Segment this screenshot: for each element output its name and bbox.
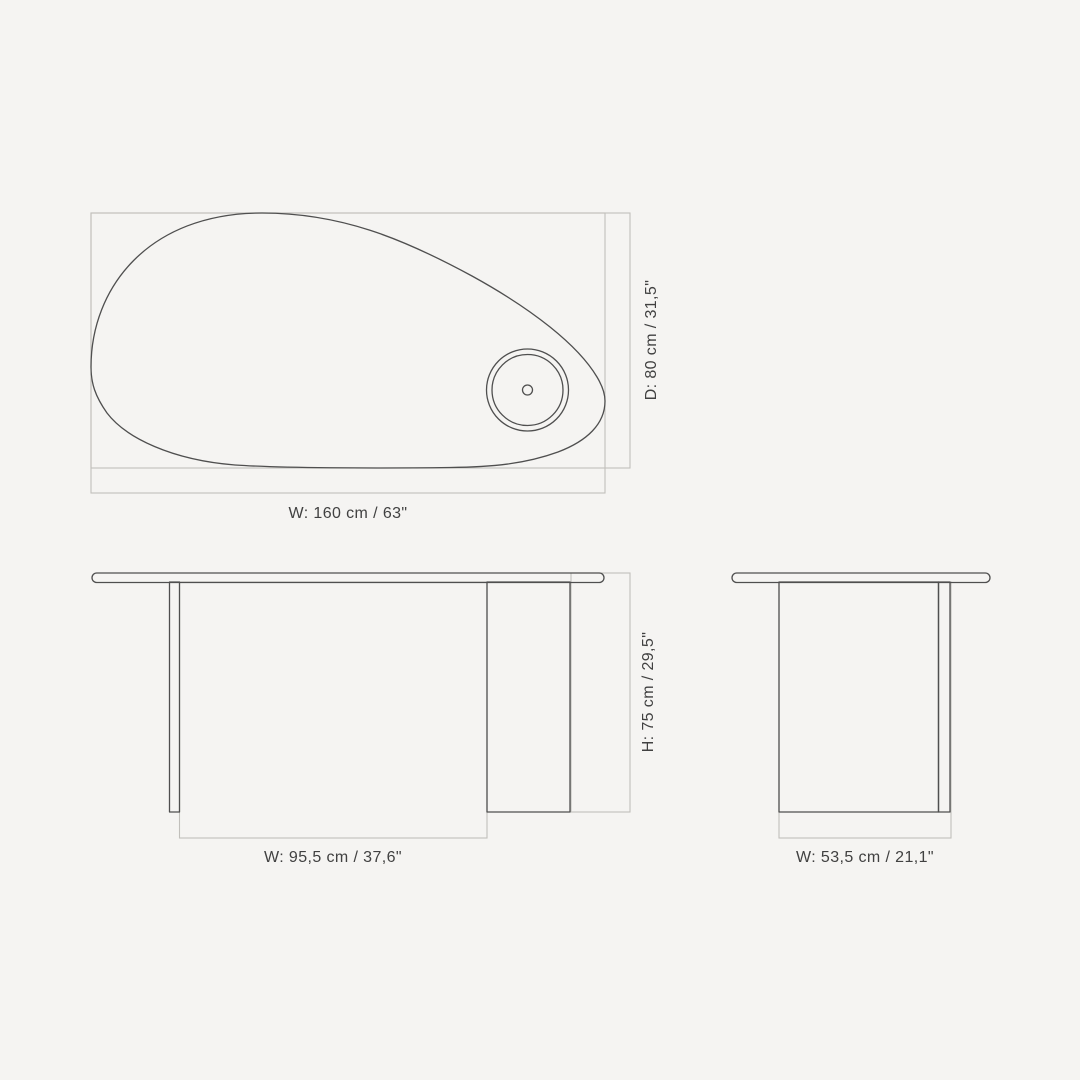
front-view-height-label: H: 75 cm / 29,5" (640, 632, 658, 753)
side-view-main-base-panel (779, 582, 939, 812)
dimension-drawing-linework (0, 0, 1080, 1080)
top-view-width-label: W: 160 cm / 63" (289, 505, 408, 523)
bowl-outer-circle (487, 349, 569, 431)
front-view-right-base-panel (487, 582, 570, 812)
furniture-dimension-drawing: W: 160 cm / 63" D: 80 cm / 31,5" W: 95,5… (0, 0, 1080, 1080)
side-view-width-dimension-box (779, 582, 951, 838)
front-view-base-width-dimension-box (180, 582, 488, 838)
front-view (92, 573, 630, 838)
side-view-tabletop-slab (732, 573, 990, 583)
top-view-depth-label: D: 80 cm / 31,5" (643, 280, 661, 401)
side-view-edge-leg-panel (939, 582, 951, 812)
front-view-width-label: W: 95,5 cm / 37,6" (264, 849, 402, 867)
front-view-left-leg-panel (170, 582, 180, 812)
top-view-depth-dimension-box (91, 213, 630, 468)
top-view (91, 213, 630, 493)
top-view-width-dimension-box (91, 213, 605, 493)
side-view (732, 573, 990, 838)
front-view-height-dimension-box (571, 573, 630, 812)
front-view-tabletop-slab (92, 573, 604, 583)
bowl-inner-circle (492, 355, 563, 426)
side-view-width-label: W: 53,5 cm / 21,1" (796, 849, 934, 867)
bowl-center-dot (523, 385, 533, 395)
tabletop-outline (91, 213, 605, 468)
